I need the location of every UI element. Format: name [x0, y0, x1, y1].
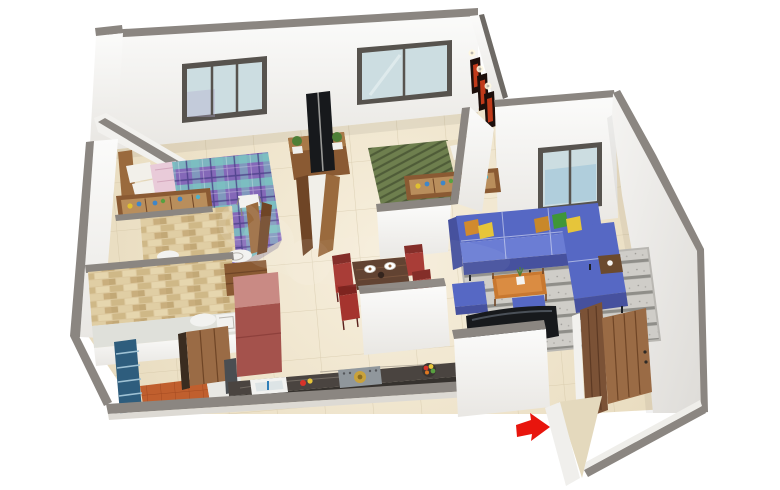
living-room-window: [538, 142, 602, 213]
fridge-front: [235, 303, 282, 377]
fruit-bowl: [422, 363, 436, 377]
pillow-mustard: [534, 216, 550, 233]
arrow-shape: [516, 413, 550, 441]
refrigerator: [233, 272, 282, 377]
kitchen-sink: [250, 377, 288, 395]
ottoman-1: [452, 281, 488, 315]
door-handle: [643, 350, 646, 353]
art-inner-3: [487, 98, 493, 123]
utility-door: [178, 326, 232, 390]
foyer-west-wall: [452, 320, 550, 417]
pillow-yellow-2: [566, 216, 582, 233]
plant-pot: [292, 146, 303, 154]
partition-face: [360, 286, 450, 355]
dining-partition-wall: [358, 278, 450, 355]
foyer-wall-face: [454, 329, 550, 417]
fridge-top: [233, 272, 280, 308]
floor-plan-canvas: [0, 0, 780, 490]
master-bedroom-window: [182, 56, 267, 123]
ottoman-top: [452, 281, 487, 307]
pillow-green: [552, 212, 568, 229]
chair-seat: [339, 293, 360, 321]
pillow-orange: [464, 219, 480, 236]
entrance-arrow-icon: [516, 413, 550, 441]
floor-plan-render: [0, 0, 780, 490]
clock-on-table: [607, 260, 613, 266]
side-table: [598, 254, 623, 274]
bedroom2-window: [357, 40, 452, 105]
vase: [516, 276, 525, 285]
foyer-south-cap: [584, 406, 706, 477]
plant-pot: [332, 142, 343, 150]
